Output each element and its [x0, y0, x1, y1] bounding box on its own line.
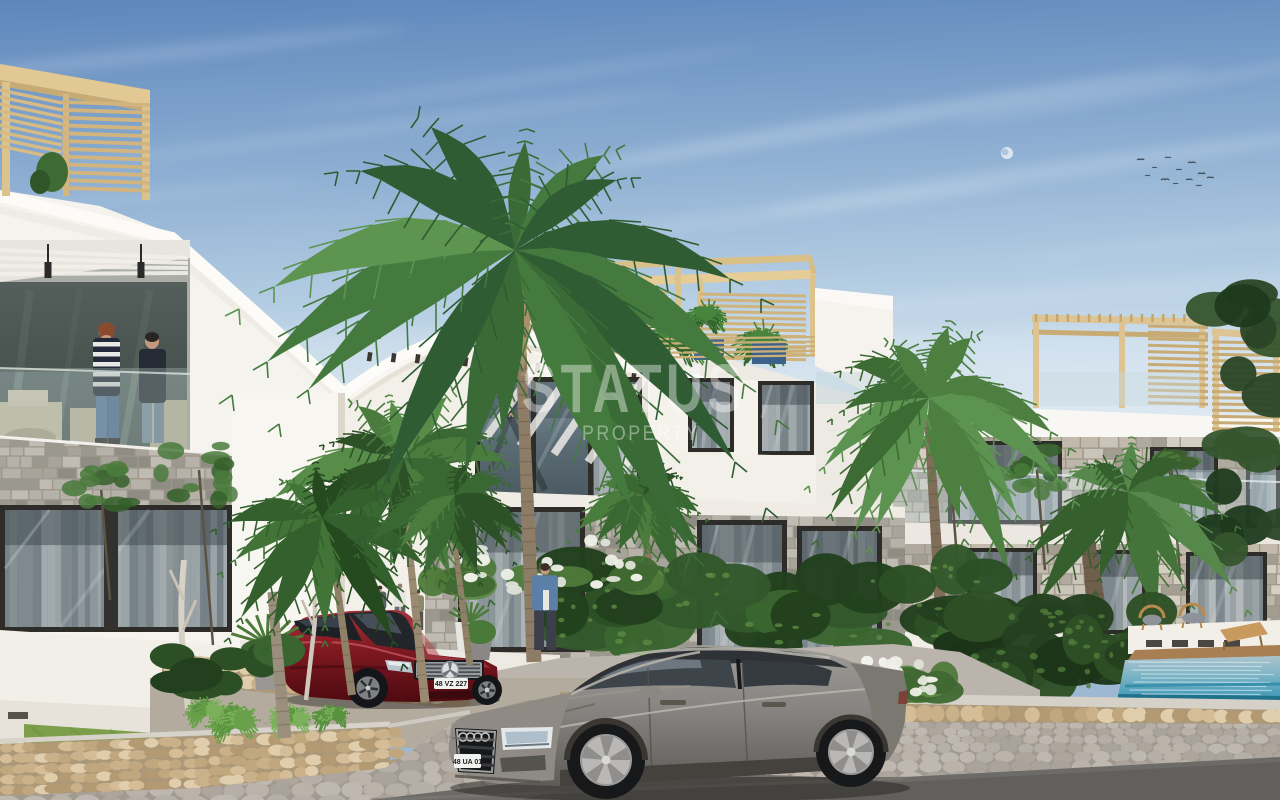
svg-text:48 VZ 227: 48 VZ 227 — [435, 681, 467, 688]
svg-text:PROPERTY: PROPERTY — [582, 422, 700, 445]
svg-text:STATUS: STATUS — [522, 350, 746, 427]
svg-text:48 UA 01: 48 UA 01 — [453, 759, 482, 766]
